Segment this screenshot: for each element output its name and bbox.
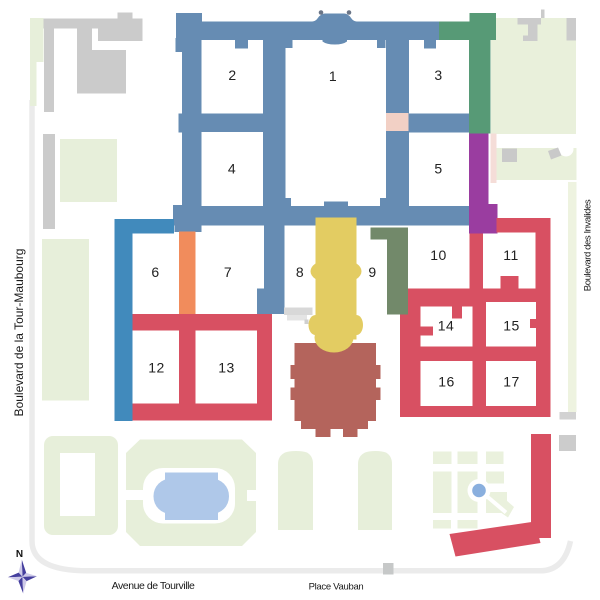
svg-text:15: 15	[503, 318, 520, 334]
svg-text:10: 10	[430, 247, 447, 263]
svg-text:Boulevard de la Tour-Maubourg: Boulevard de la Tour-Maubourg	[12, 249, 26, 417]
svg-text:1: 1	[329, 68, 337, 84]
svg-text:13: 13	[218, 360, 235, 376]
svg-text:5: 5	[434, 161, 442, 177]
svg-text:2: 2	[228, 67, 236, 83]
svg-text:11: 11	[503, 247, 519, 263]
svg-text:9: 9	[368, 264, 376, 280]
svg-text:12: 12	[148, 360, 165, 376]
svg-text:Boulevard des Invalides: Boulevard des Invalides	[583, 199, 594, 291]
svg-text:8: 8	[296, 264, 304, 280]
svg-text:6: 6	[151, 264, 159, 280]
svg-text:16: 16	[438, 374, 455, 390]
svg-text:4: 4	[228, 161, 236, 177]
svg-text:N: N	[16, 549, 23, 560]
svg-text:3: 3	[434, 67, 442, 83]
svg-text:Place Vauban: Place Vauban	[309, 582, 364, 593]
svg-text:Avenue de Tourville: Avenue de Tourville	[112, 580, 195, 592]
svg-text:17: 17	[503, 374, 520, 390]
svg-text:7: 7	[224, 264, 232, 280]
svg-text:14: 14	[438, 318, 455, 334]
